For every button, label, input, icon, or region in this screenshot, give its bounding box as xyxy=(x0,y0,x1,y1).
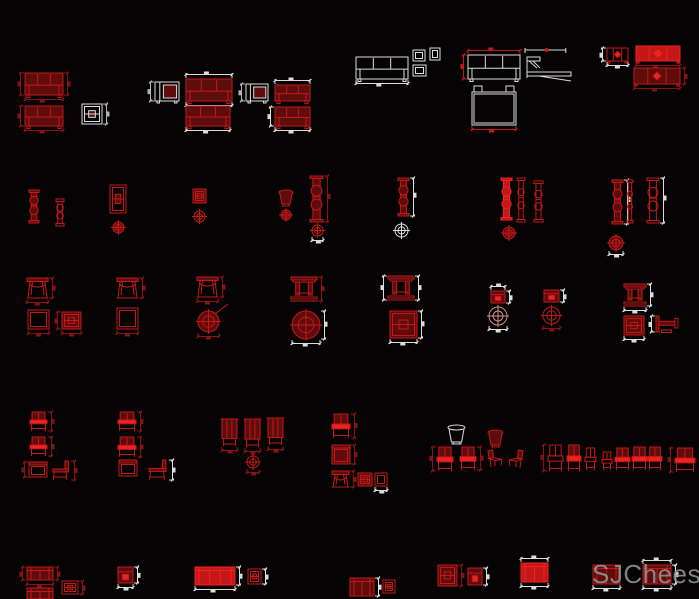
cad-block-chair-back-panel-2[interactable] xyxy=(244,419,262,454)
cad-block-column-elev-2[interactable] xyxy=(56,199,64,226)
cad-block-sofa-elev-5[interactable] xyxy=(274,78,312,104)
cad-block-bench-plan-1[interactable] xyxy=(358,473,372,486)
cad-block-chair-elev-5[interactable] xyxy=(430,446,453,473)
cad-block-tea-table-elev-2[interactable] xyxy=(381,275,421,302)
cad-block-cabinet-elev-3[interactable] xyxy=(633,67,688,92)
cad-block-baluster-plan-2[interactable] xyxy=(393,222,410,239)
cad-block-tea-table-plan-square[interactable] xyxy=(389,310,425,346)
cad-block-sofa-section-profile[interactable] xyxy=(525,48,571,81)
cad-block-chair-elev-11[interactable] xyxy=(615,448,630,470)
cad-block-stool-plan-1[interactable] xyxy=(487,305,509,332)
cad-block-table-plan-4[interactable] xyxy=(438,564,464,588)
cad-block-armchair-plan-1[interactable] xyxy=(332,444,357,466)
cad-block-sofa-elev-2[interactable] xyxy=(18,105,65,134)
cad-block-chair-elev-3[interactable] xyxy=(118,411,143,433)
cad-block-column-elev-4[interactable] xyxy=(517,178,525,222)
cad-block-stool-elev-1[interactable] xyxy=(490,284,513,305)
cad-block-table-elev-1[interactable] xyxy=(26,277,56,306)
cad-block-sofa-elev-white-1[interactable] xyxy=(355,57,410,86)
cad-block-baluster-plan-1[interactable] xyxy=(310,223,325,243)
cad-block-sofa-plan-4[interactable] xyxy=(350,577,381,598)
cad-block-table-plan-2[interactable] xyxy=(116,308,140,336)
cad-block-pot-elev-1[interactable] xyxy=(279,190,293,206)
cad-block-chair-elev-6[interactable] xyxy=(460,446,483,472)
cad-block-armchair-elev-1[interactable] xyxy=(332,413,357,440)
cad-canvas[interactable]: SJCheese xyxy=(0,0,699,599)
cad-block-side-table-plan-3[interactable] xyxy=(430,48,440,60)
cad-block-column-elev-5[interactable] xyxy=(534,181,543,222)
cad-block-ped-table-elev-3[interactable] xyxy=(623,283,654,314)
cad-block-chair-persp-2[interactable] xyxy=(509,450,523,468)
cad-block-chair-side-1[interactable] xyxy=(53,460,77,482)
cad-block-chair-persp-1[interactable] xyxy=(488,450,502,467)
cad-block-chair-elev-2[interactable] xyxy=(30,436,54,458)
cad-block-cabinet-elev-2[interactable] xyxy=(635,46,682,68)
cad-block-armchair-side-1[interactable] xyxy=(148,81,179,104)
cad-block-tea-table-plan-round[interactable] xyxy=(290,309,327,346)
cad-block-baluster-elev-4[interactable] xyxy=(647,177,666,225)
cad-block-table-side-1[interactable] xyxy=(55,311,83,337)
cad-block-base-plan-2[interactable] xyxy=(192,209,207,224)
cad-block-side-table-plan-6[interactable] xyxy=(248,568,268,586)
cad-block-bench-plan-2[interactable] xyxy=(374,473,389,493)
cad-block-chair-elev-8[interactable] xyxy=(567,445,581,471)
cad-block-sofa-elev-6[interactable] xyxy=(268,106,312,134)
cad-block-sofa-elev-3[interactable] xyxy=(185,72,234,108)
cad-block-tea-table-elev-1[interactable] xyxy=(290,276,324,303)
cad-block-table-plan-1[interactable] xyxy=(27,310,51,336)
cad-block-side-table-plan-4[interactable] xyxy=(413,65,426,76)
cad-block-chair-elev-14[interactable] xyxy=(668,447,695,474)
cad-block-cabinet-plan-2[interactable] xyxy=(468,567,489,587)
cad-block-sofa-plan-3[interactable] xyxy=(194,566,243,593)
cad-block-panel-elev-1[interactable] xyxy=(110,185,126,213)
cad-block-side-table-plan-5[interactable] xyxy=(62,580,85,596)
cad-block-sofa-elev-white-2[interactable] xyxy=(461,48,522,82)
cad-block-stool-elev-2[interactable] xyxy=(544,289,566,304)
cad-block-sofa-elev-4[interactable] xyxy=(185,106,232,133)
cad-block-column-elev-3[interactable] xyxy=(501,178,512,220)
cad-block-table-plan-3[interactable] xyxy=(623,316,646,342)
cad-block-base-plan-1[interactable] xyxy=(111,220,126,235)
cad-block-sofa-plan-7[interactable] xyxy=(642,558,679,591)
cad-block-chair-elev-12[interactable] xyxy=(632,447,647,470)
cad-block-chair-back-panel-3[interactable] xyxy=(267,418,285,452)
cad-block-cabinet-plan-1[interactable] xyxy=(117,566,141,591)
cad-block-table-elev-3[interactable] xyxy=(196,276,226,305)
cad-block-chair-elev-4[interactable] xyxy=(118,436,143,459)
cad-block-sofa-plan-1[interactable] xyxy=(20,566,60,588)
cad-block-baluster-elev-3[interactable] xyxy=(612,179,630,226)
cad-block-chair-elev-1[interactable] xyxy=(30,411,54,433)
cad-block-side-table-plan-1[interactable] xyxy=(82,103,109,126)
cad-block-side-table-plan-2[interactable] xyxy=(413,50,425,61)
cad-block-sofa-elev-1[interactable] xyxy=(18,72,70,103)
cad-block-cabinet-elev-1[interactable] xyxy=(600,47,630,69)
cad-block-armchair-side-2[interactable] xyxy=(239,83,268,104)
cad-block-table-plan-large[interactable] xyxy=(471,86,518,132)
cad-block-column-plan-1[interactable] xyxy=(501,225,517,241)
cad-block-chair-plan-2[interactable] xyxy=(119,460,137,476)
cad-block-chair-elev-7[interactable] xyxy=(541,444,563,473)
cad-block-baluster-elev-1[interactable] xyxy=(310,175,330,224)
cad-block-sofa-plan-2[interactable] xyxy=(27,588,53,599)
cad-block-chair-back-panel-1[interactable] xyxy=(221,419,239,453)
cad-block-chair-elev-10[interactable] xyxy=(602,452,612,470)
cad-block-table-plan-round-1[interactable] xyxy=(196,304,228,339)
cad-block-side-table-plan-7[interactable] xyxy=(383,580,395,593)
cad-drawing-layer xyxy=(0,0,699,599)
cad-block-chair-plan-1[interactable] xyxy=(22,461,47,479)
cad-block-pot-plan-1[interactable] xyxy=(279,208,293,222)
cad-block-vase-elev-1[interactable] xyxy=(488,430,503,447)
cad-block-chair-elev-9[interactable] xyxy=(585,448,596,470)
cad-block-base-plan-3[interactable] xyxy=(607,234,625,257)
cad-block-sofa-plan-5[interactable] xyxy=(520,556,550,589)
cad-block-table-elev-2[interactable] xyxy=(117,277,145,300)
cad-block-table-side-2[interactable] xyxy=(649,315,678,334)
cad-block-seat-plan-1[interactable] xyxy=(245,454,261,475)
cad-block-baluster-elev-2[interactable] xyxy=(398,177,416,218)
cad-block-finial-elev-1[interactable] xyxy=(193,189,206,203)
cad-block-chair-elev-13[interactable] xyxy=(648,447,662,470)
cad-block-stool-plan-2[interactable] xyxy=(541,305,562,331)
cad-block-censer-elev-1[interactable] xyxy=(448,425,465,444)
cad-block-stool-elev-3[interactable] xyxy=(332,470,356,489)
cad-block-column-elev-1[interactable] xyxy=(29,190,39,223)
cad-block-chair-side-2[interactable] xyxy=(149,459,175,482)
cad-block-sofa-plan-6[interactable] xyxy=(592,565,622,591)
